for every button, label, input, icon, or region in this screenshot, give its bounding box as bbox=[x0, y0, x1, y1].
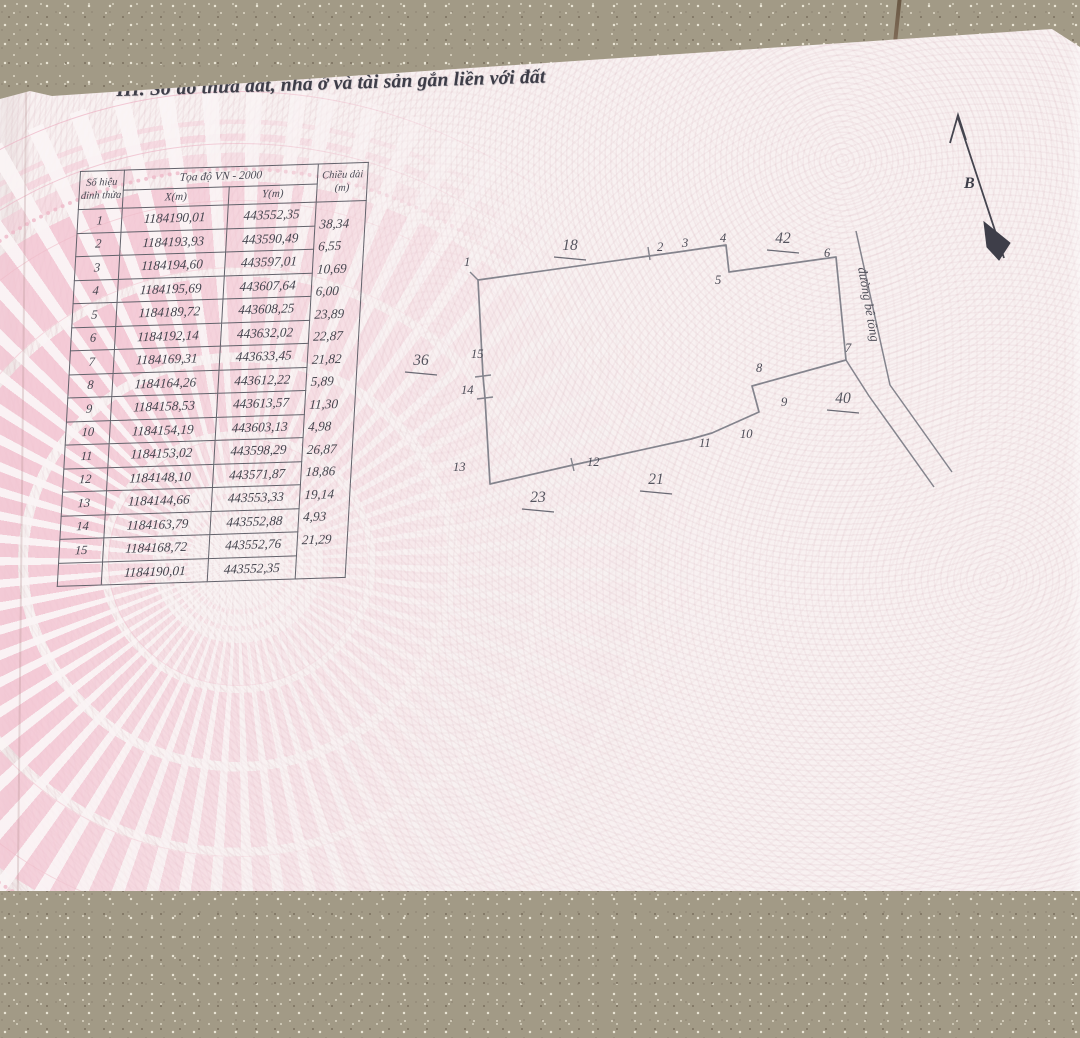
edge-length-value: 19,14 bbox=[304, 486, 335, 503]
vertex-number-cell: 12 bbox=[63, 467, 108, 492]
vertex-label-14: 14 bbox=[461, 383, 474, 397]
vertex-tick bbox=[477, 397, 493, 399]
north-arrow-shaft bbox=[958, 118, 1004, 258]
x-coordinate-cell: 1184169,31 bbox=[113, 346, 220, 373]
y-coordinate-cell: 443597,01 bbox=[224, 249, 313, 275]
adjacent-parcel-label-40: 40 bbox=[835, 390, 851, 407]
vertex-coordinate-table: Số hiệu đỉnh thửa Tọa độ VN - 2000 Chiều… bbox=[57, 162, 369, 587]
vertex-label-3: 3 bbox=[681, 236, 688, 250]
y-coordinate-cell: 443612,22 bbox=[218, 367, 307, 393]
parcel-boundary bbox=[478, 245, 846, 484]
y-coordinate-cell: 443613,57 bbox=[216, 391, 305, 417]
x-coordinate-cell: 1184163,79 bbox=[104, 511, 211, 538]
x-coordinate-cell: 1184190,01 bbox=[101, 558, 208, 585]
adjacent-parcel-label-21: 21 bbox=[648, 471, 664, 488]
adjacent-parcel-label-36: 36 bbox=[412, 352, 429, 369]
vertex-label-12: 12 bbox=[587, 455, 600, 469]
edge-length-value: 6,00 bbox=[315, 283, 339, 300]
vertex-number-cell: 15 bbox=[59, 538, 104, 563]
vertex-label-9: 9 bbox=[781, 395, 788, 409]
coordinate-table: Số hiệu đỉnh thửa Tọa độ VN - 2000 Chiều… bbox=[57, 162, 369, 587]
y-coordinate-cell: 443598,29 bbox=[214, 438, 303, 464]
edge-length-value: 11,30 bbox=[309, 395, 339, 412]
edge-length-value: 4,93 bbox=[303, 508, 327, 525]
vertex-label-5: 5 bbox=[715, 273, 721, 287]
x-coordinate-cell: 1184168,72 bbox=[103, 535, 210, 562]
certificate-page: III. Sơ đồ thửa đất, nhà ở và tài sản gắ… bbox=[0, 0, 1080, 891]
road-edge-line bbox=[846, 360, 934, 487]
vertex-tick bbox=[648, 247, 650, 260]
road-label: đường bê tông bbox=[855, 266, 883, 343]
north-label: B bbox=[963, 175, 975, 192]
vertex-label-6: 6 bbox=[824, 246, 831, 260]
y-coordinate-cell: 443632,02 bbox=[220, 320, 309, 346]
adjacent-parcel-label-23: 23 bbox=[530, 489, 546, 506]
edge-length-value: 4,98 bbox=[308, 418, 332, 435]
y-coordinate-cell: 443552,88 bbox=[210, 508, 299, 534]
y-coordinate-cell: 443552,76 bbox=[209, 532, 298, 558]
x-coordinate-cell: 1184148,10 bbox=[107, 464, 214, 491]
vertex-label-2: 2 bbox=[657, 240, 663, 254]
vertex-label-10: 10 bbox=[740, 427, 753, 441]
edge-length-value: 38,34 bbox=[319, 215, 350, 232]
edge-length-value: 6,55 bbox=[318, 238, 342, 255]
x-coordinate-cell: 1184194,60 bbox=[118, 252, 225, 279]
y-coordinate-cell: 443608,25 bbox=[222, 296, 311, 322]
vertex-number-cell: 10 bbox=[65, 420, 110, 445]
road-edge-line bbox=[856, 231, 952, 472]
adjacent-parcel-underline bbox=[767, 250, 799, 253]
vertex-number-cell: 2 bbox=[76, 232, 121, 257]
vertex-number-cell: 11 bbox=[64, 444, 109, 469]
vertex-number-cell bbox=[57, 561, 102, 586]
vertex-number-cell: 14 bbox=[60, 514, 105, 539]
x-coordinate-cell: 1184189,72 bbox=[116, 299, 223, 326]
y-coordinate-cell: 443590,49 bbox=[226, 226, 315, 252]
adjacent-parcel-underline bbox=[554, 257, 586, 260]
edge-length-value: 21,29 bbox=[301, 531, 332, 548]
x-coordinate-cell: 1184154,19 bbox=[109, 417, 216, 444]
x-coordinate-cell: 1184195,69 bbox=[117, 276, 224, 303]
edge-length-value: 21,82 bbox=[311, 350, 342, 367]
x-coordinate-cell: 1184164,26 bbox=[112, 370, 219, 397]
edge-length-value: 5,89 bbox=[310, 373, 334, 390]
vertex-label-7: 7 bbox=[845, 341, 852, 355]
printed-content: III. Sơ đồ thửa đất, nhà ở và tài sản gắ… bbox=[0, 0, 1080, 891]
y-coordinate-cell: 443553,33 bbox=[211, 485, 300, 511]
vertex-number-cell: 5 bbox=[72, 302, 117, 327]
y-coordinate-cell: 443552,35 bbox=[227, 202, 316, 228]
vertex-number-cell: 6 bbox=[70, 326, 115, 351]
vertex-tick bbox=[470, 272, 478, 280]
header-edge-length: Chiều dài (m) bbox=[316, 162, 368, 202]
adjacent-parcel-label-42: 42 bbox=[775, 230, 791, 247]
y-coordinate-cell: 443603,13 bbox=[215, 414, 304, 440]
north-arrow-fletching-icon bbox=[984, 222, 1010, 260]
edge-length-value: 23,89 bbox=[314, 305, 345, 322]
adjacent-parcel-underline bbox=[640, 491, 672, 494]
vertex-label-4: 4 bbox=[720, 231, 726, 245]
vertex-number-cell: 7 bbox=[69, 350, 114, 375]
vertex-number-cell: 8 bbox=[68, 373, 113, 398]
vertex-label-11: 11 bbox=[699, 436, 711, 450]
photo-of-land-certificate: { "page": { "section_title": "III. Sơ đồ… bbox=[0, 0, 1080, 891]
y-coordinate-cell: 443571,87 bbox=[212, 461, 301, 487]
vertex-number-cell: 1 bbox=[77, 208, 122, 233]
adjacent-parcel-underline bbox=[405, 372, 437, 375]
y-coordinate-cell: 443552,35 bbox=[207, 555, 296, 581]
vertex-number-cell: 3 bbox=[74, 255, 119, 280]
x-coordinate-cell: 1184144,66 bbox=[105, 487, 212, 514]
vertex-tick bbox=[475, 375, 491, 377]
adjacent-parcel-underline bbox=[827, 410, 859, 413]
edge-length-value: 22,87 bbox=[313, 328, 344, 345]
adjacent-parcel-label-18: 18 bbox=[562, 237, 578, 254]
vertex-label-15: 15 bbox=[471, 347, 484, 361]
section-title: III. Sơ đồ thửa đất, nhà ở và tài sản gắ… bbox=[116, 60, 756, 102]
y-coordinate-cell: 443607,64 bbox=[223, 273, 312, 299]
edge-length-value: 26,87 bbox=[306, 441, 337, 458]
x-coordinate-cell: 1184190,01 bbox=[121, 205, 228, 232]
north-arrow-head-icon bbox=[950, 115, 966, 143]
vertex-number-cell: 9 bbox=[66, 397, 111, 422]
y-coordinate-cell: 443633,45 bbox=[219, 343, 308, 369]
vertex-tick bbox=[571, 458, 574, 471]
x-coordinate-cell: 1184193,93 bbox=[120, 228, 227, 255]
vertex-number-cell: 13 bbox=[61, 491, 106, 516]
adjacent-parcel-underline bbox=[522, 509, 554, 512]
edge-length-value: 10,69 bbox=[317, 260, 348, 277]
x-coordinate-cell: 1184158,53 bbox=[110, 393, 217, 420]
vertex-label-13: 13 bbox=[453, 460, 466, 474]
edge-length-value: 18,86 bbox=[305, 463, 336, 480]
vertex-number-cell: 4 bbox=[73, 279, 118, 304]
vertex-label-1: 1 bbox=[464, 255, 470, 269]
x-coordinate-cell: 1184153,02 bbox=[108, 440, 215, 467]
vertex-label-8: 8 bbox=[756, 361, 763, 375]
x-coordinate-cell: 1184192,14 bbox=[114, 323, 221, 350]
header-vertex-number: Số hiệu đỉnh thửa bbox=[78, 170, 124, 209]
